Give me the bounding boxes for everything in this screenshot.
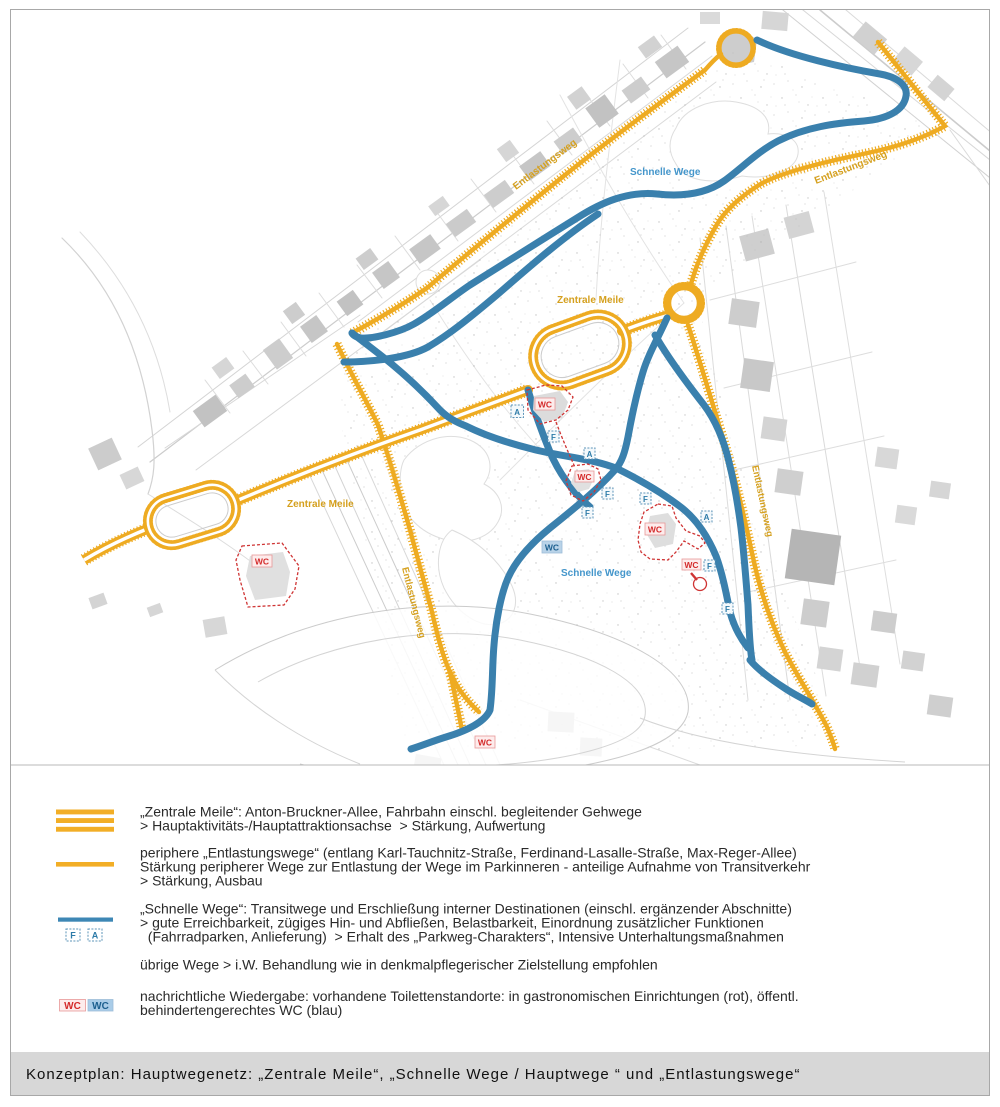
svg-text:Schnelle Wege: Schnelle Wege	[630, 167, 701, 178]
svg-text:WC: WC	[64, 1001, 81, 1012]
svg-text:Schnelle Wege: Schnelle Wege	[561, 568, 632, 579]
svg-text:(Fahrradparken, Anlieferung): (Fahrradparken, Anlieferung) > Erhalt de…	[140, 929, 784, 945]
svg-text:F: F	[551, 433, 556, 442]
svg-text:übrige Wege > i.W. Behandlung: übrige Wege > i.W. Behandlung wie in den…	[140, 957, 658, 973]
svg-text:F: F	[585, 509, 590, 518]
svg-text:WC: WC	[545, 543, 559, 553]
svg-text:A: A	[92, 931, 99, 941]
svg-text:WC: WC	[478, 738, 492, 748]
svg-text:A: A	[704, 513, 710, 522]
svg-text:Zentrale Meile: Zentrale Meile	[287, 499, 354, 510]
svg-text:> Hauptaktivitäts-/Hauptattrak: > Hauptaktivitäts-/Hauptattraktionsachse…	[140, 818, 545, 834]
svg-text:WC: WC	[92, 1001, 109, 1012]
svg-text:WC: WC	[577, 472, 591, 482]
svg-text:> Stärkung, Ausbau: > Stärkung, Ausbau	[140, 873, 263, 889]
svg-text:WC: WC	[538, 400, 552, 410]
svg-text:behindertengerechtes WC (blau): behindertengerechtes WC (blau)	[140, 1002, 342, 1018]
svg-text:F: F	[725, 605, 730, 614]
svg-text:A: A	[514, 408, 520, 417]
svg-text:Konzeptplan: Hauptwegenetz: „Z: Konzeptplan: Hauptwegenetz: „Zentrale Me…	[26, 1066, 800, 1083]
svg-text:WC: WC	[255, 557, 269, 567]
svg-text:A: A	[587, 450, 593, 459]
svg-text:F: F	[605, 490, 610, 499]
svg-text:F: F	[643, 495, 648, 504]
svg-text:WC: WC	[684, 560, 698, 570]
svg-text:WC: WC	[648, 525, 662, 535]
svg-text:F: F	[707, 562, 712, 571]
svg-text:Zentrale Meile: Zentrale Meile	[557, 295, 624, 306]
svg-text:F: F	[70, 931, 76, 941]
